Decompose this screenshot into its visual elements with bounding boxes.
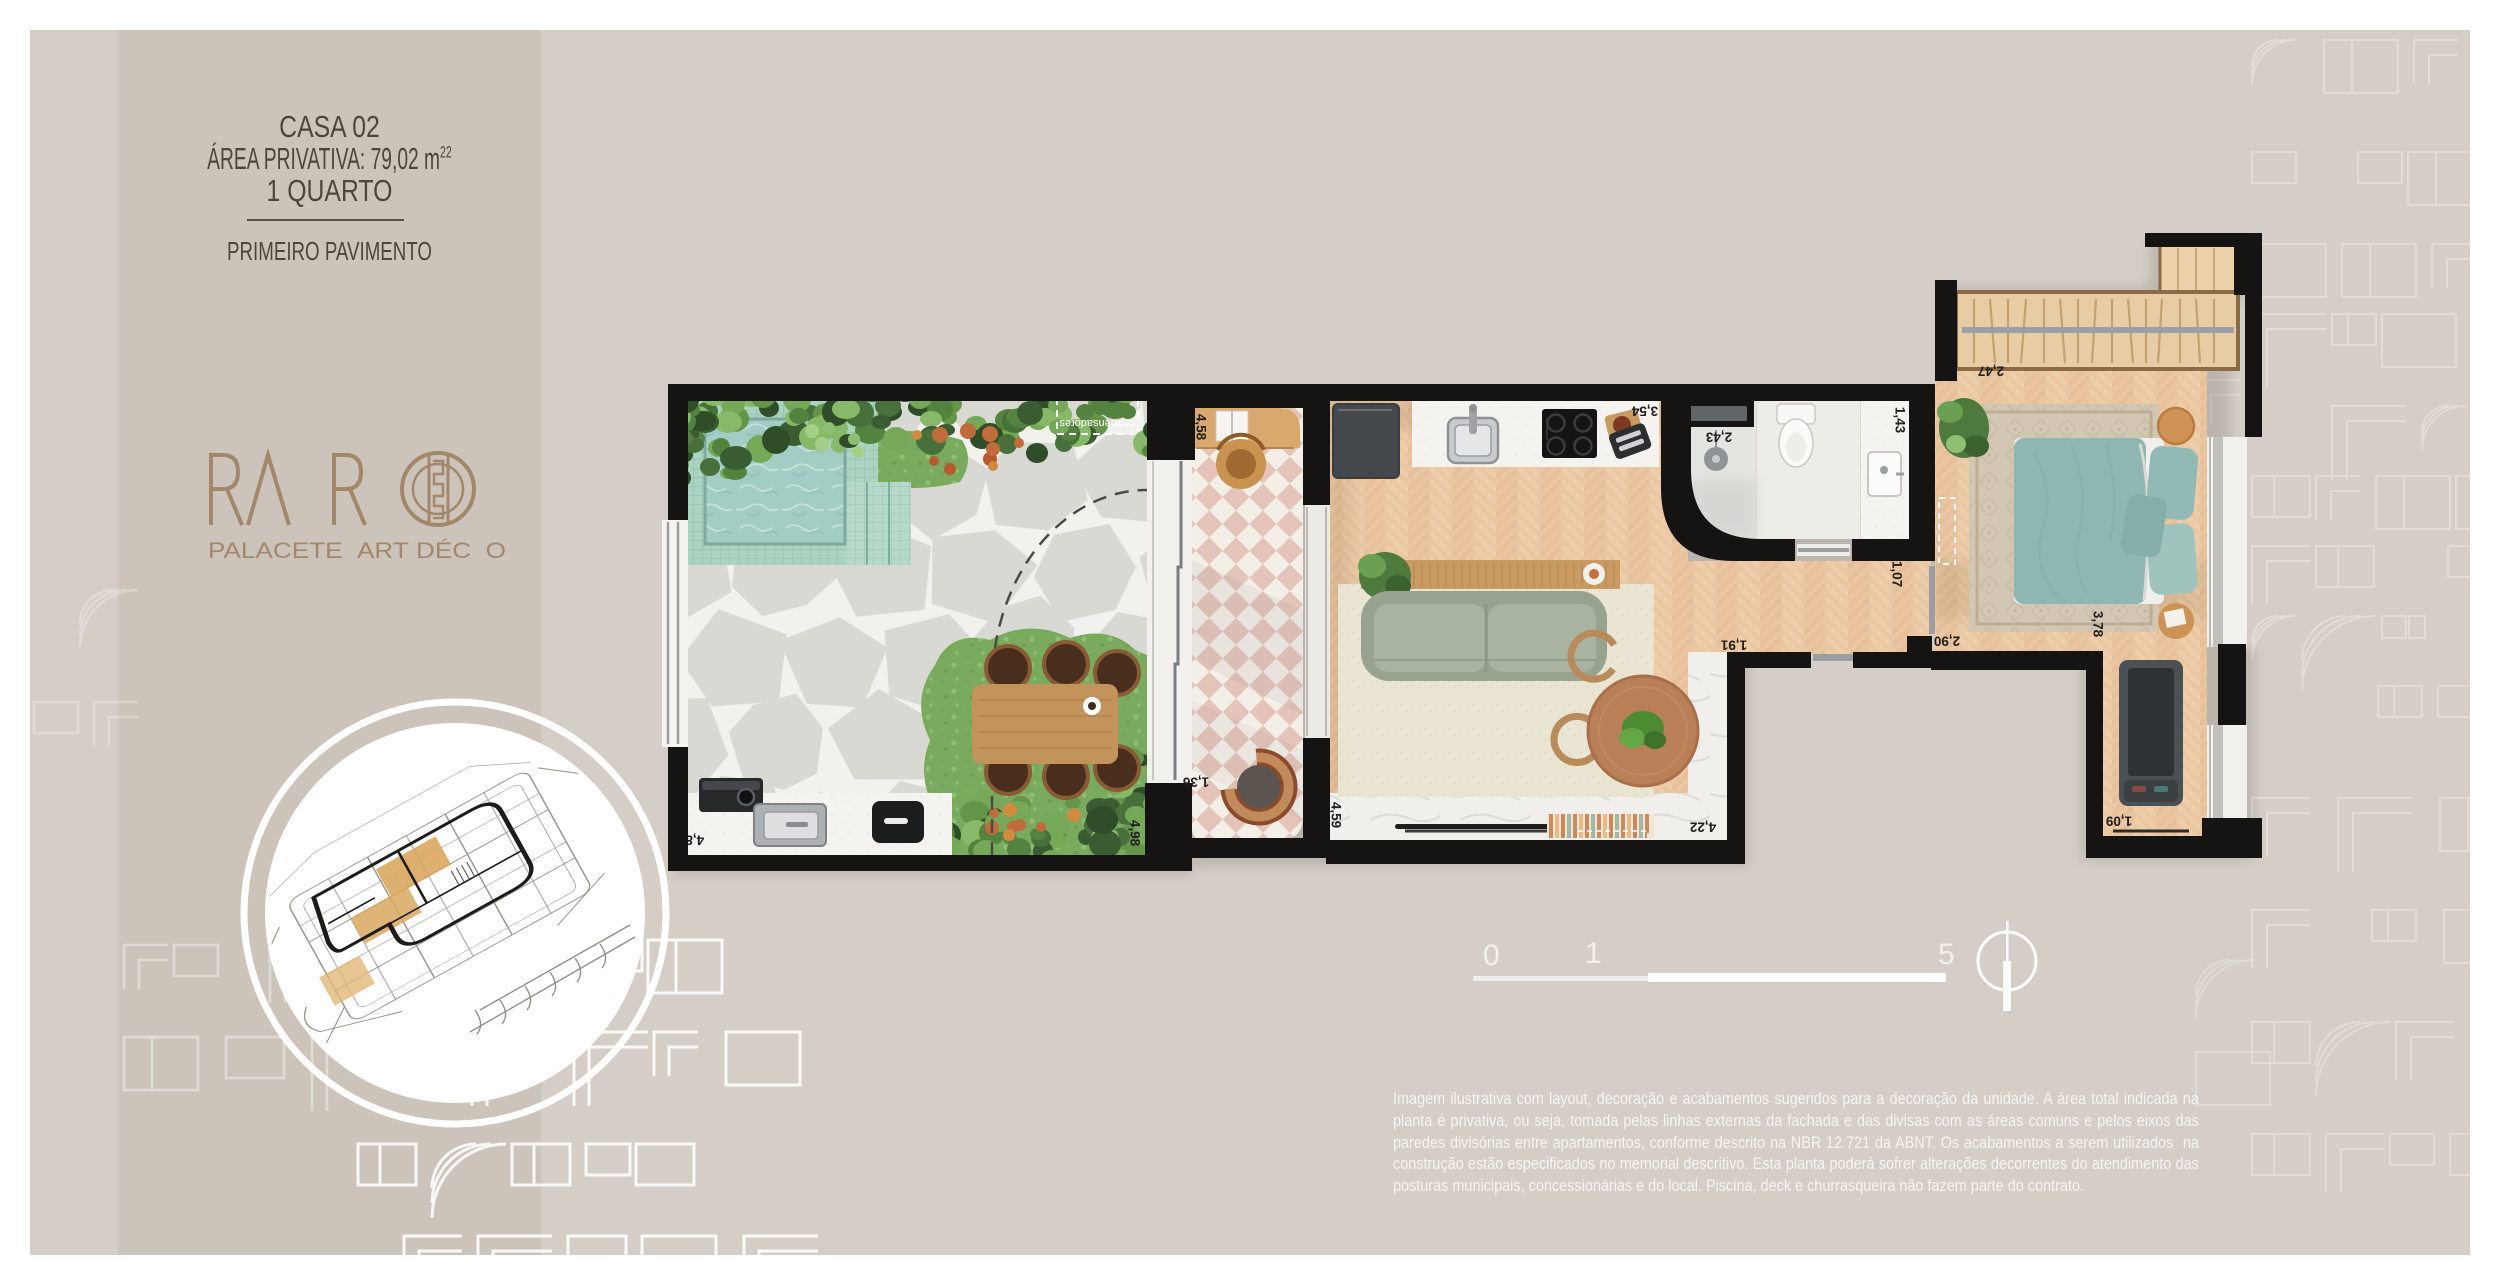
svg-text:1: 1 [1585, 937, 1602, 970]
svg-text:3,78: 3,78 [2091, 611, 2106, 638]
svg-text:1,09: 1,09 [2106, 814, 2132, 829]
svg-text:4,22: 4,22 [1690, 820, 1716, 835]
svg-text:condensadores: condensadores [1059, 417, 1135, 429]
svg-text:2,90: 2,90 [1934, 634, 1960, 649]
svg-text:4,98: 4,98 [1128, 820, 1143, 847]
svg-text:1,36: 1,36 [1182, 775, 1209, 790]
svg-text:3,54: 3,54 [1631, 404, 1658, 419]
svg-text:1,43: 1,43 [1893, 407, 1908, 434]
svg-text:5: 5 [1938, 938, 1955, 971]
svg-text:1,07: 1,07 [1890, 561, 1905, 587]
svg-text:2,47: 2,47 [1978, 364, 2004, 379]
svg-text:4,58: 4,58 [1194, 414, 1209, 441]
svg-text:2,43: 2,43 [1705, 430, 1732, 445]
svg-text:4,59: 4,59 [1329, 802, 1344, 828]
svg-text:PALACETE ART DÉC O: PALACETE ART DÉC O [208, 538, 506, 563]
svg-text:0: 0 [1483, 939, 1500, 972]
svg-text:1,91: 1,91 [1720, 638, 1747, 653]
